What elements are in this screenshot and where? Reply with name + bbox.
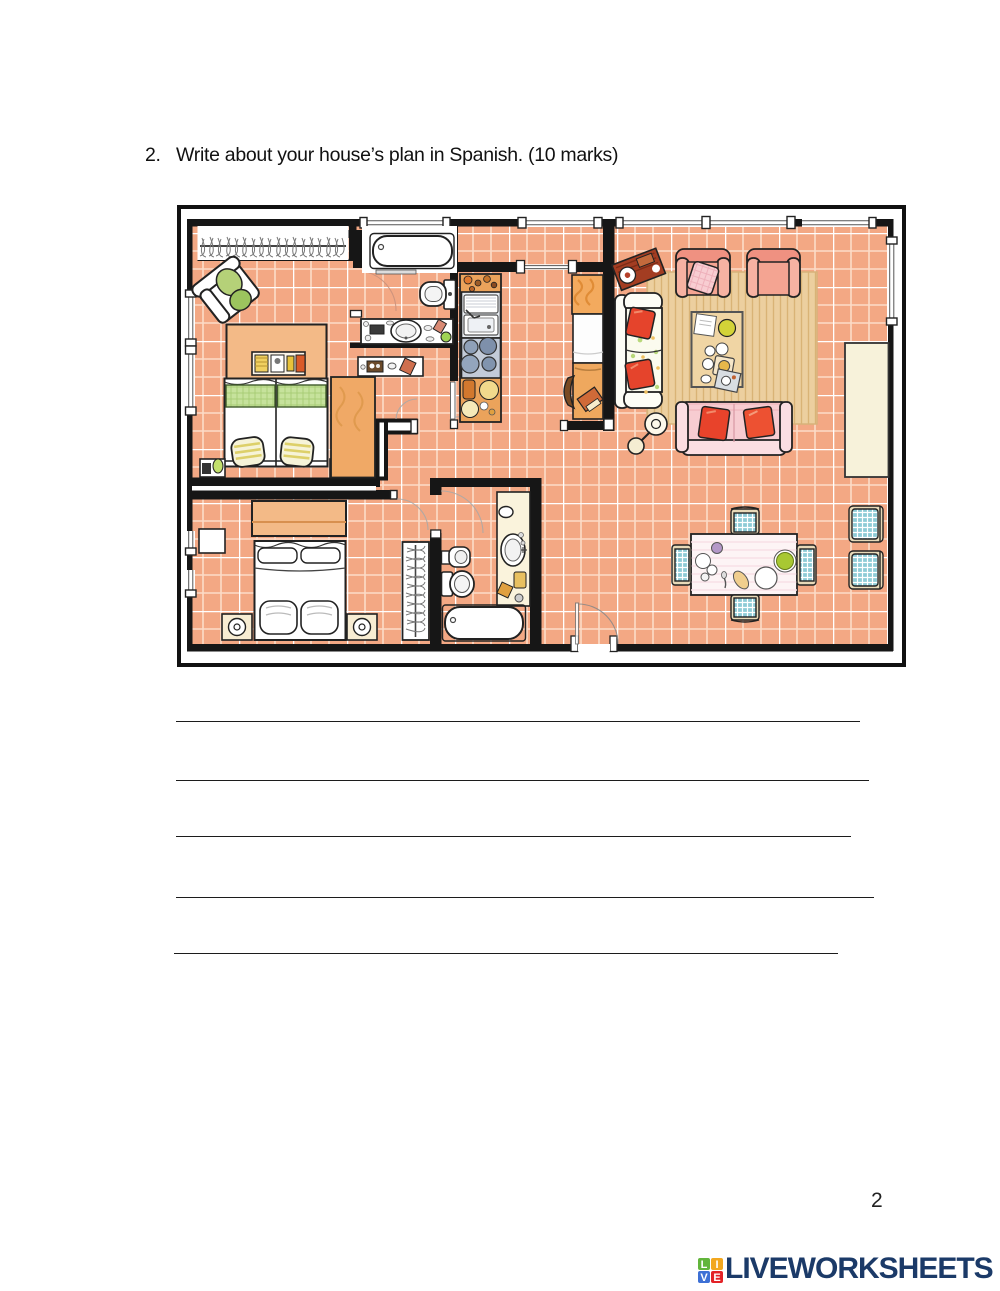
svg-text:L: L bbox=[701, 1259, 708, 1271]
svg-text:V: V bbox=[700, 1272, 708, 1284]
svg-text:E: E bbox=[713, 1272, 720, 1284]
svg-text:I: I bbox=[715, 1259, 718, 1271]
